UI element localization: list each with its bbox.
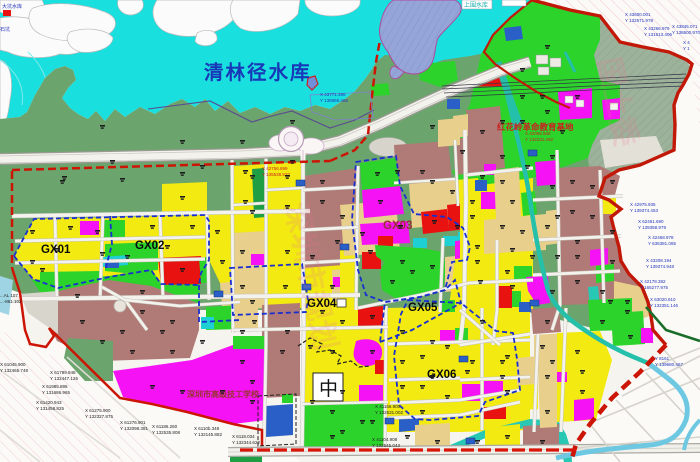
svg-text:X 61420.943: X 61420.943 <box>36 400 62 405</box>
svg-text:Y 132098.381: Y 132098.381 <box>120 426 148 431</box>
svg-text:X 43845.071: X 43845.071 <box>672 24 698 29</box>
svg-text:X 61186.260: X 61186.260 <box>152 424 178 429</box>
svg-text:Y 165277.975: Y 165277.975 <box>640 285 668 290</box>
svg-text:X 61789.948: X 61789.948 <box>50 370 76 375</box>
svg-text:Y 139374.453: Y 139374.453 <box>630 208 658 213</box>
svg-text:上围水库: 上围水库 <box>464 1 488 9</box>
svg-text:...AL 107: ...AL 107 <box>0 293 18 298</box>
svg-text:Y 132344.622: Y 132344.622 <box>232 440 260 445</box>
svg-text:Y 132232.462: Y 132232.462 <box>525 137 553 142</box>
svg-text:Y 636381.085: Y 636381.085 <box>648 241 676 246</box>
svg-text:Y 132535.808: Y 132535.808 <box>152 430 180 435</box>
svg-text:GX04: GX04 <box>307 298 337 310</box>
svg-text:Y 132571.978: Y 132571.978 <box>625 18 653 23</box>
svg-text:X 42056.566: X 42056.566 <box>525 131 551 136</box>
svg-text:GX03: GX03 <box>383 220 412 232</box>
svg-text:Y 132145.882: Y 132145.882 <box>194 432 222 437</box>
svg-text:Y 1: Y 1 <box>683 46 690 51</box>
svg-text:X 61045.900: X 61045.900 <box>0 362 26 367</box>
svg-text:GX01: GX01 <box>41 244 71 256</box>
svg-text:X 62461.690: X 62461.690 <box>638 219 664 224</box>
svg-text:X 43600.001: X 43600.001 <box>625 12 651 17</box>
svg-text:Y 131613.406: Y 131613.406 <box>644 32 672 37</box>
svg-text:X 61275.900: X 61275.900 <box>85 408 111 413</box>
svg-text:Y 139374.948: Y 139374.948 <box>646 264 674 269</box>
svg-text:Y 131686.965: Y 131686.965 <box>42 390 70 395</box>
svg-text:Y 132531.002: Y 132531.002 <box>375 410 403 415</box>
svg-text:X 42756.899: X 42756.899 <box>262 166 288 171</box>
svg-text:Y 8161: Y 8161 <box>655 356 670 361</box>
svg-text:大坑水库: 大坑水库 <box>2 3 22 10</box>
svg-text:X 42178.382: X 42178.382 <box>640 279 666 284</box>
svg-text:Y 132447.126: Y 132447.126 <box>50 376 78 381</box>
svg-text:Y 138600.970: Y 138600.970 <box>672 30 700 35</box>
svg-text:Y 138868.466: Y 138868.466 <box>320 98 348 103</box>
svg-text:X 6110b.348: X 6110b.348 <box>194 426 220 431</box>
svg-text:X 6118.034: X 6118.034 <box>232 434 255 439</box>
svg-text:Y 132351.146: Y 132351.146 <box>650 303 678 308</box>
svg-text:X 41166.900: X 41166.900 <box>375 404 401 409</box>
svg-text:X 41104.908: X 41104.908 <box>372 437 398 442</box>
svg-text:Y 131458.825: Y 131458.825 <box>36 406 64 411</box>
svg-text:X 4: X 4 <box>683 40 690 45</box>
svg-text:X 43208.194: X 43208.194 <box>646 258 672 263</box>
svg-text:石坑: 石坑 <box>0 26 10 33</box>
svg-text:X 61985.895: X 61985.895 <box>42 384 68 389</box>
svg-text:X 43771.386: X 43771.386 <box>320 92 346 97</box>
svg-text:中: 中 <box>319 378 338 400</box>
svg-text:Y 132545.043: Y 132545.043 <box>372 443 400 448</box>
svg-text:清林径水库: 清林径水库 <box>204 61 312 84</box>
svg-text:X 61276.901: X 61276.901 <box>120 420 146 425</box>
svg-text:X 63020.610: X 63020.610 <box>650 297 676 302</box>
svg-text:Y 132327.875: Y 132327.875 <box>85 414 113 419</box>
svg-text:X 43266.979: X 43266.979 <box>644 26 670 31</box>
svg-text:Y 132465.748: Y 132465.748 <box>0 368 28 373</box>
svg-text:Y 139358.979: Y 139358.979 <box>638 225 666 230</box>
svg-text:GX02: GX02 <box>135 240 164 252</box>
svg-text:Y 139680.467: Y 139680.467 <box>655 362 683 367</box>
svg-text:X 42975.935: X 42975.935 <box>630 202 656 207</box>
svg-text:...-861.102: ...-861.102 <box>0 299 22 304</box>
svg-text:X 42468.978: X 42468.978 <box>648 235 674 240</box>
svg-text:GX05: GX05 <box>408 302 438 314</box>
